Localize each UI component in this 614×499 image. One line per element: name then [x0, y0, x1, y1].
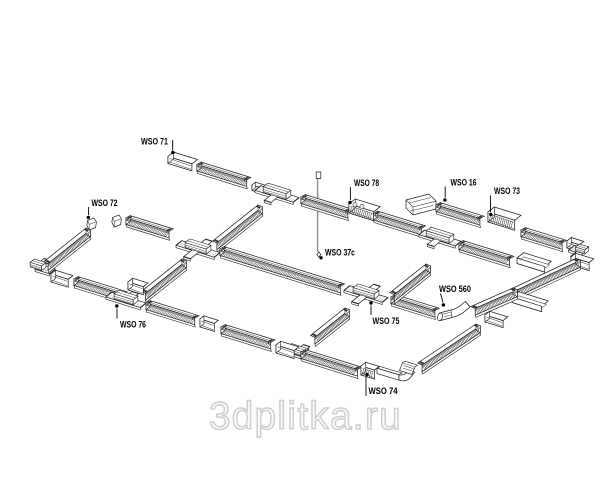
svg-text:WSO 16: WSO 16 — [451, 178, 477, 188]
svg-text:WSO 78: WSO 78 — [354, 178, 379, 188]
svg-text:WSO 37c: WSO 37c — [325, 248, 355, 258]
svg-text:3dplitka.ru: 3dplitka.ru — [209, 395, 402, 438]
svg-text:WSO 73: WSO 73 — [494, 186, 520, 196]
svg-text:WSO 75: WSO 75 — [373, 316, 400, 326]
svg-text:WSO 72: WSO 72 — [92, 198, 118, 208]
svg-text:WSO 560: WSO 560 — [439, 284, 471, 294]
svg-text:WSO 71: WSO 71 — [141, 137, 168, 147]
svg-text:WSO 74: WSO 74 — [369, 386, 399, 396]
svg-text:WSO 76: WSO 76 — [120, 320, 146, 330]
